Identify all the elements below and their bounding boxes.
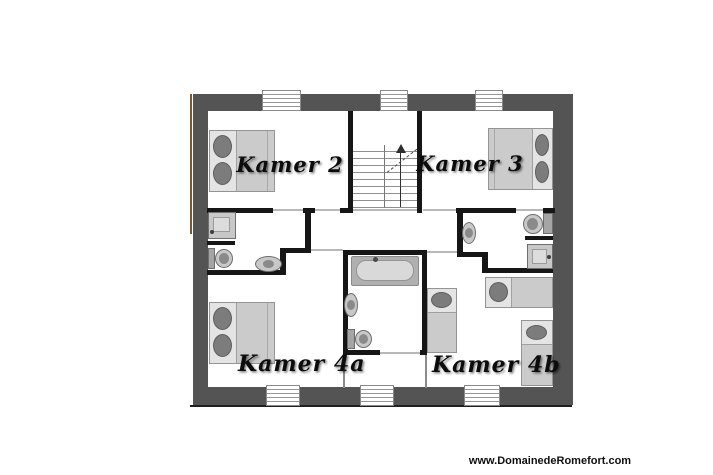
wall-segment <box>525 236 553 240</box>
sink-icon <box>462 222 477 245</box>
wall-segment <box>420 350 427 355</box>
shower-icon <box>527 244 553 269</box>
shower-tray <box>213 217 230 232</box>
window-icon <box>464 385 500 406</box>
wall-segment <box>457 252 488 257</box>
wall-segment <box>280 248 311 253</box>
bathtub-icon <box>351 256 419 286</box>
pillow-icon <box>535 134 549 156</box>
pillow-icon <box>535 161 549 183</box>
stair-flight-left <box>353 145 385 208</box>
window-icon <box>262 90 301 111</box>
wall-segment <box>456 208 516 213</box>
door-opening <box>423 209 456 211</box>
door-opening <box>315 209 340 211</box>
window-icon <box>380 90 408 111</box>
pillow-icon <box>489 282 508 302</box>
door-opening <box>427 251 457 253</box>
single-bed-icon <box>427 288 457 353</box>
stair-divider <box>384 145 385 208</box>
shower-icon <box>208 212 236 239</box>
door-opening <box>273 209 303 211</box>
door-opening <box>516 209 543 211</box>
toilet-icon <box>347 329 375 350</box>
window-icon <box>266 385 300 406</box>
wall-segment <box>343 250 427 255</box>
pillow-icon <box>213 334 232 357</box>
wall-segment <box>305 212 311 253</box>
window-icon <box>360 385 394 406</box>
outer-wall-left <box>193 94 208 405</box>
bathtub-faucet <box>373 257 378 262</box>
room-label-kamer-2: Kamer 2 <box>228 152 352 177</box>
sink-icon <box>255 256 283 273</box>
floor-plan: Kamer 2 Kamer 3 <box>0 0 713 475</box>
shower-drain <box>547 255 551 259</box>
toilet-seat <box>527 218 538 230</box>
sink-icon <box>344 293 359 318</box>
toilet-icon <box>523 213 554 235</box>
wall-segment <box>207 241 235 245</box>
toilet-seat <box>359 334 368 344</box>
door-opening <box>311 249 343 251</box>
partition-wall <box>425 355 427 388</box>
sink-drain <box>347 300 355 310</box>
room-label-kamer-3: Kamer 3 <box>408 151 532 176</box>
toilet-tank <box>543 213 553 234</box>
pillow-icon <box>431 292 452 308</box>
stair-landing-line <box>353 209 417 211</box>
room-label-kamer-4a: Kamer 4a <box>238 351 362 377</box>
pillow-icon <box>213 307 232 330</box>
window-icon <box>475 90 503 111</box>
toilet-icon <box>208 248 234 270</box>
room-label-kamer-4b: Kamer 4b <box>432 352 558 378</box>
toilet-tank <box>347 329 355 349</box>
toilet-seat <box>219 253 229 264</box>
shower-tray <box>532 249 547 264</box>
door-opening <box>380 352 420 354</box>
toilet-tank <box>208 248 215 269</box>
bathtub-basin <box>356 260 414 281</box>
watermark-url: www.DomainedeRomefort.com <box>450 455 650 467</box>
stair-up-arrow-icon <box>396 144 406 153</box>
sink-drain <box>263 260 274 268</box>
wood-edge-line <box>190 94 192 234</box>
sink-drain <box>465 228 473 238</box>
shower-drain <box>210 230 214 234</box>
pillow-icon <box>526 325 547 340</box>
single-bed-icon <box>485 277 553 308</box>
